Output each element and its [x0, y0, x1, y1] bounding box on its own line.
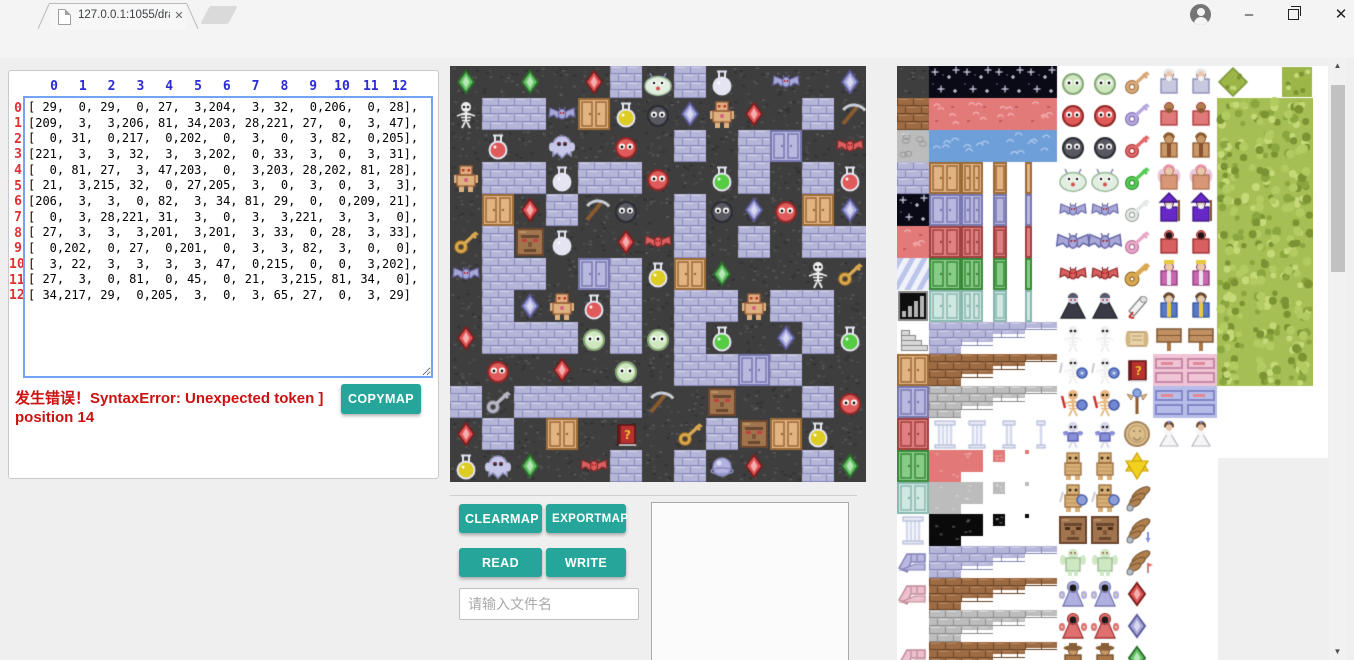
matrix-col-header: 4	[155, 79, 183, 94]
matrix-col-header: 1	[69, 79, 97, 94]
clearmap-button[interactable]: CLEARMAP	[459, 504, 542, 533]
tab-edge	[187, 4, 199, 29]
new-tab-button[interactable]	[200, 6, 238, 24]
error-message: 发生错误！SyntaxError: Unexpected token ] pos…	[15, 389, 347, 427]
write-button[interactable]: WRITE	[546, 548, 626, 577]
matrix-col-header: 11	[357, 79, 385, 94]
matrix-row-header: 8	[9, 226, 22, 241]
matrix-row-header: 3	[9, 147, 22, 162]
matrix-col-header: 5	[184, 79, 212, 94]
vertical-scrollbar[interactable]: ▲ ▼	[1329, 58, 1346, 660]
filename-input[interactable]	[459, 588, 639, 620]
browser-titlebar: 127.0.0.1:1055/drawMa ✕ – ✕	[0, 0, 1354, 29]
scrollbar-thumb[interactable]	[1331, 85, 1345, 272]
page-content: 0123456789101112 0123456789101112 发生错误！S…	[0, 58, 1354, 660]
restore-button[interactable]	[1288, 9, 1299, 20]
matrix-row-header: 11	[9, 273, 22, 288]
tab-close-icon[interactable]: ✕	[172, 9, 186, 23]
matrix-panel: 0123456789101112 0123456789101112 发生错误！S…	[8, 70, 439, 479]
matrix-col-header: 0	[40, 79, 68, 94]
matrix-row-header: 1	[9, 116, 22, 131]
matrix-col-header: 7	[242, 79, 270, 94]
matrix-row-header: 6	[9, 194, 22, 209]
page-favicon-icon	[58, 9, 71, 25]
scroll-down-icon[interactable]: ▼	[1329, 644, 1346, 660]
matrix-row-header: 4	[9, 163, 22, 178]
copymap-button[interactable]: COPYMAP	[341, 384, 421, 414]
matrix-col-header: 9	[299, 79, 327, 94]
matrix-col-header: 2	[98, 79, 126, 94]
tab-edge	[38, 4, 50, 29]
matrix-row-header: 7	[9, 210, 22, 225]
browser-toolbar: ← → ⟳ i 127.0.0.1:1055/drawMapGUI.html ☆…	[0, 29, 1354, 59]
matrix-row-header: 0	[9, 101, 22, 116]
matrix-col-header: 8	[270, 79, 298, 94]
matrix-row-header: 10	[9, 257, 22, 272]
tab-title[interactable]: 127.0.0.1:1055/drawMa	[78, 9, 170, 21]
minimize-button[interactable]: –	[1234, 6, 1264, 24]
matrix-col-header: 3	[126, 79, 154, 94]
matrix-textarea[interactable]	[23, 96, 433, 378]
matrix-col-header: 6	[213, 79, 241, 94]
output-box[interactable]	[651, 502, 849, 660]
close-button[interactable]: ✕	[1326, 6, 1354, 24]
profile-icon[interactable]	[1190, 4, 1211, 25]
tileset-palette-canvas[interactable]	[897, 66, 1313, 660]
matrix-col-header: 10	[328, 79, 356, 94]
matrix-row-header: 9	[9, 241, 22, 256]
exportmap-button[interactable]: EXPORTMAP	[546, 504, 626, 533]
matrix-row-header: 12	[9, 288, 22, 303]
read-button[interactable]: READ	[459, 548, 542, 577]
tab-edge	[49, 3, 187, 4]
matrix-row-header: 5	[9, 179, 22, 194]
matrix-row-header: 2	[9, 132, 22, 147]
map-canvas[interactable]	[450, 66, 866, 482]
section-divider	[450, 495, 857, 496]
scroll-up-icon[interactable]: ▲	[1329, 58, 1346, 74]
matrix-col-header: 12	[386, 79, 414, 94]
